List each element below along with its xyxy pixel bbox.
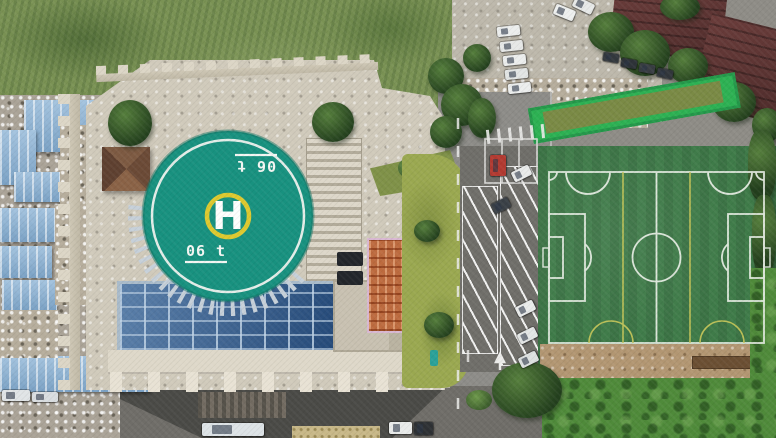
shuttle-bus bbox=[202, 423, 264, 436]
white-car bbox=[508, 82, 532, 94]
white-car bbox=[518, 350, 540, 368]
dark-car bbox=[620, 58, 637, 70]
white-car bbox=[500, 40, 524, 52]
white-car bbox=[503, 54, 527, 66]
white-car bbox=[505, 68, 529, 80]
vehicles-layer bbox=[0, 0, 776, 438]
white-car bbox=[517, 326, 539, 344]
white-truck bbox=[32, 392, 58, 402]
dark-car bbox=[414, 422, 433, 435]
white-car bbox=[389, 422, 412, 434]
dark-car bbox=[490, 197, 511, 215]
dark-car bbox=[638, 63, 655, 75]
white-car bbox=[515, 299, 537, 317]
red-car bbox=[490, 155, 506, 176]
white-car bbox=[511, 164, 533, 182]
dark-car bbox=[656, 67, 674, 79]
aerial-photo-stage: H 06 t 06 t bbox=[0, 0, 776, 438]
white-car bbox=[497, 25, 521, 37]
dark-car bbox=[602, 52, 619, 64]
white-truck bbox=[2, 390, 30, 401]
